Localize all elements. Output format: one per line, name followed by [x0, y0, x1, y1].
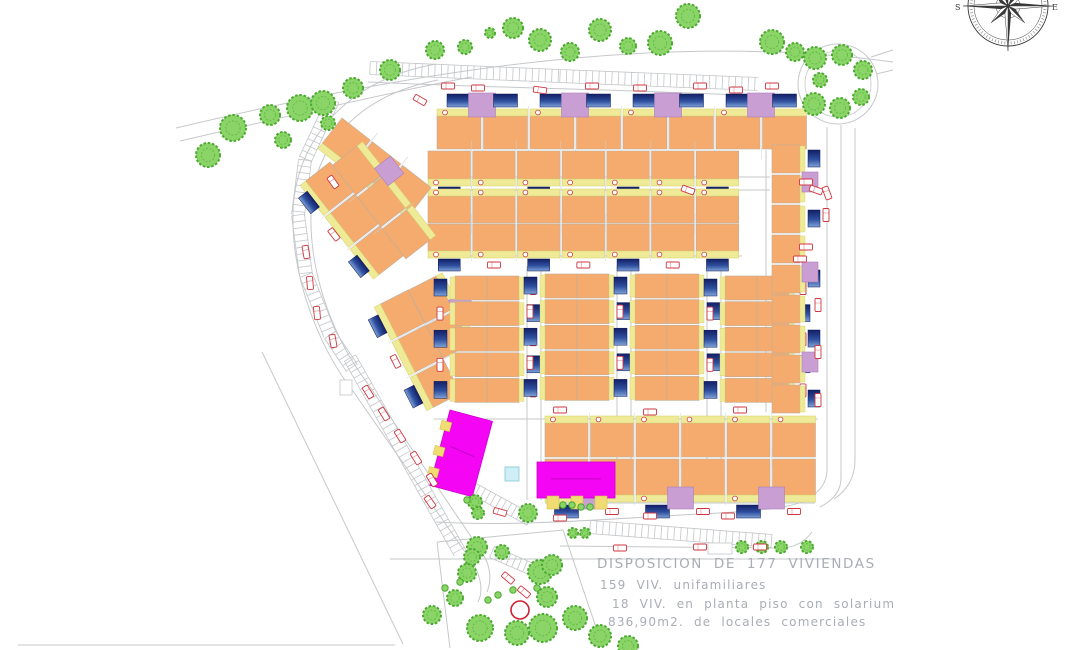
- house-unit: [428, 196, 471, 223]
- terrace-strip: [519, 354, 524, 376]
- house-unit: [545, 274, 577, 298]
- house-unit: [484, 116, 528, 149]
- house-unit: [667, 376, 699, 400]
- car-marker: [707, 358, 713, 371]
- road-line: [876, 70, 893, 74]
- annotation-line-1: DISPOSICION DE 177 VIVIENDAS: [597, 556, 876, 572]
- porch-marker: [612, 252, 617, 257]
- car-marker: [734, 407, 747, 413]
- house-unit: [682, 423, 725, 457]
- terrace-strip: [609, 377, 614, 399]
- car-marker: [554, 407, 567, 413]
- tree: [830, 98, 850, 118]
- house-unit: [696, 196, 739, 223]
- annotation-line-3: 18 VIV. en planta piso con solarium: [612, 597, 895, 611]
- car-marker: [472, 85, 485, 91]
- terrace-strip: [720, 277, 725, 299]
- car-marker: [410, 451, 422, 465]
- tree: [853, 89, 869, 105]
- house-unit: [577, 325, 609, 349]
- car-marker: [800, 179, 813, 185]
- pool: [614, 328, 627, 345]
- house-unit: [577, 351, 609, 375]
- house-unit: [772, 265, 800, 293]
- tree: [804, 47, 826, 69]
- pool: [524, 277, 537, 294]
- road-line: [871, 50, 893, 57]
- house-unit: [577, 376, 609, 400]
- pool: [737, 505, 761, 518]
- tree: [260, 105, 280, 125]
- tree: [589, 19, 611, 41]
- red-circle-annotation: [511, 601, 529, 619]
- porch-marker: [702, 252, 707, 257]
- house-unit: [530, 116, 574, 149]
- terrace-strip: [609, 326, 614, 348]
- car-marker: [722, 513, 735, 519]
- terrace-strip: [800, 386, 805, 412]
- car-marker: [517, 586, 531, 599]
- pool: [524, 379, 537, 396]
- terrace-strip: [450, 354, 455, 376]
- pool: [808, 210, 820, 227]
- porch-marker: [478, 252, 483, 257]
- porch-marker: [733, 417, 738, 422]
- tree: [568, 528, 578, 538]
- porch-marker: [702, 180, 707, 185]
- pool: [438, 259, 460, 271]
- house-unit: [545, 376, 577, 400]
- upper-floor-block: [802, 262, 818, 282]
- house-unit: [635, 325, 667, 349]
- tree: [458, 40, 472, 54]
- house-unit: [562, 151, 605, 179]
- pool: [706, 259, 728, 271]
- porch-marker: [523, 180, 528, 185]
- terrace-strip: [450, 303, 455, 325]
- terrace-strip: [630, 275, 635, 297]
- car-marker: [730, 87, 743, 93]
- car-marker: [614, 545, 627, 551]
- house-unit: [725, 302, 757, 326]
- terrace-strip: [609, 301, 614, 323]
- house-unit: [773, 423, 816, 457]
- compass-rose: [963, 0, 1053, 51]
- house-unit: [670, 116, 714, 149]
- terrace-strip: [699, 275, 704, 297]
- porch-marker: [612, 190, 617, 195]
- tree: [786, 43, 804, 61]
- porch-marker: [568, 190, 573, 195]
- porch-marker: [523, 252, 528, 257]
- annotation-line-2: 159 VIV. unifamiliares: [600, 578, 767, 592]
- porch-marker: [596, 417, 601, 422]
- tree: [196, 143, 220, 167]
- tree: [736, 541, 748, 553]
- car-marker: [527, 356, 533, 369]
- tree: [220, 115, 246, 141]
- house-unit: [607, 196, 650, 223]
- utility-box: [708, 543, 732, 554]
- house-unit: [772, 325, 800, 353]
- upper-floor-block: [748, 93, 775, 117]
- house-unit: [667, 300, 699, 324]
- site-plan-canvas: DISPOSICION DE 177 VIVIENDAS 159 VIV. un…: [0, 0, 1070, 650]
- car-marker: [815, 346, 821, 359]
- porch-marker: [612, 180, 617, 185]
- tree: [426, 41, 444, 59]
- terrace-strip: [720, 379, 725, 401]
- car-marker: [487, 262, 500, 268]
- upper-floor-block: [759, 487, 785, 509]
- tree: [380, 60, 400, 80]
- house-unit: [455, 302, 487, 326]
- tree: [561, 43, 579, 61]
- terrace-strip: [699, 377, 704, 399]
- tree: [803, 93, 825, 115]
- house-unit: [473, 224, 516, 251]
- car-marker: [527, 305, 533, 318]
- car-marker: [666, 262, 679, 268]
- terrace-strip: [699, 352, 704, 374]
- upper-floor-block: [562, 93, 589, 117]
- pool: [434, 330, 447, 347]
- car-marker: [586, 83, 599, 89]
- pool-tech-box: [505, 467, 519, 481]
- tree: [813, 73, 827, 87]
- tree: [311, 91, 335, 115]
- car-marker: [554, 515, 567, 521]
- house-unit: [577, 274, 609, 298]
- pool: [524, 328, 537, 345]
- road-line: [834, 128, 855, 499]
- bush: [457, 579, 463, 585]
- pool: [614, 379, 627, 396]
- tree: [618, 636, 638, 650]
- house-unit: [473, 196, 516, 223]
- porch-marker: [657, 252, 662, 257]
- house-unit: [635, 351, 667, 375]
- tree: [464, 549, 480, 565]
- pool: [808, 150, 820, 167]
- compass-label-e: E: [1052, 3, 1058, 12]
- tree: [676, 4, 700, 28]
- house-unit: [772, 385, 800, 413]
- car-marker: [493, 507, 507, 516]
- house-unit: [772, 175, 800, 203]
- house-unit: [763, 116, 807, 149]
- pool: [704, 330, 717, 347]
- house-unit: [607, 224, 650, 251]
- bush: [569, 502, 575, 508]
- tree: [801, 541, 813, 553]
- pool: [680, 94, 704, 107]
- entrance-stub: [595, 496, 607, 509]
- house-unit: [455, 378, 487, 402]
- terrace-strip: [630, 352, 635, 374]
- car-marker: [442, 83, 455, 89]
- pool: [434, 279, 447, 296]
- car-marker: [822, 186, 832, 200]
- house-unit: [772, 295, 800, 323]
- car-marker: [754, 544, 767, 550]
- house-unit: [725, 353, 757, 377]
- porch-marker: [722, 110, 727, 115]
- pool: [773, 94, 797, 107]
- house-unit: [772, 205, 800, 233]
- terrace-strip: [800, 146, 805, 172]
- terrace-strip: [540, 352, 545, 374]
- house-unit: [437, 116, 481, 149]
- house-unit: [652, 151, 695, 179]
- pool: [726, 94, 750, 107]
- tree: [775, 541, 787, 553]
- car-marker: [694, 544, 707, 550]
- tree: [620, 38, 636, 54]
- car-marker: [606, 509, 619, 515]
- house-unit: [772, 355, 800, 383]
- terrace-strip: [609, 275, 614, 297]
- porch-marker: [443, 110, 448, 115]
- car-marker: [313, 306, 320, 319]
- terrace-strip: [540, 301, 545, 323]
- compass-point: [1005, 6, 1008, 51]
- house-unit: [428, 224, 471, 251]
- car-marker: [617, 305, 623, 318]
- tree: [343, 78, 363, 98]
- porch-marker: [478, 180, 483, 185]
- house-unit: [455, 276, 487, 300]
- porch-marker: [657, 190, 662, 195]
- car-marker: [501, 572, 515, 585]
- house-unit: [772, 145, 800, 173]
- tree: [321, 116, 335, 130]
- house-row: [437, 93, 807, 159]
- house-unit: [487, 327, 519, 351]
- tree: [832, 45, 852, 65]
- houses-layer: [293, 93, 820, 518]
- pool: [704, 279, 717, 296]
- house-unit: [545, 423, 588, 457]
- house-unit: [517, 224, 560, 251]
- terrace-strip: [519, 303, 524, 325]
- pool: [617, 259, 639, 271]
- house-unit: [545, 300, 577, 324]
- terrace-strip: [519, 379, 524, 401]
- car-marker: [362, 385, 374, 399]
- car-marker: [766, 83, 779, 89]
- bush: [485, 597, 491, 603]
- terrace-strip: [800, 326, 805, 352]
- car-marker: [788, 509, 801, 515]
- house-unit: [562, 224, 605, 251]
- upper-floor-block: [668, 487, 694, 509]
- house-unit: [696, 151, 739, 179]
- porch-marker: [687, 417, 692, 422]
- bush: [534, 585, 540, 591]
- house-unit: [562, 196, 605, 223]
- porch-marker: [702, 190, 707, 195]
- house-unit: [591, 423, 634, 457]
- terrace-strip: [699, 326, 704, 348]
- house-unit: [667, 325, 699, 349]
- pool: [434, 381, 447, 398]
- house-unit: [517, 196, 560, 223]
- car-marker: [800, 244, 813, 250]
- pool: [614, 277, 627, 294]
- house-unit: [652, 224, 695, 251]
- terrace-strip: [800, 296, 805, 322]
- bush: [587, 504, 593, 510]
- terrace-strip: [450, 379, 455, 401]
- house-unit: [725, 327, 757, 351]
- porch-marker: [629, 110, 634, 115]
- porch-marker: [657, 180, 662, 185]
- house-unit: [667, 274, 699, 298]
- pool: [587, 94, 611, 107]
- house-unit: [696, 224, 739, 251]
- house-unit: [635, 376, 667, 400]
- car-marker: [413, 94, 427, 106]
- porch-marker: [568, 252, 573, 257]
- terrace-strip: [519, 277, 524, 299]
- entrance-stub: [547, 496, 559, 509]
- house-unit: [667, 351, 699, 375]
- compass-point: [1008, 6, 1011, 51]
- porch-marker: [536, 110, 541, 115]
- compass-label-s: S: [955, 3, 960, 12]
- porch-marker: [523, 190, 528, 195]
- car-marker: [394, 429, 406, 443]
- car-marker: [815, 394, 821, 407]
- car-marker: [437, 358, 443, 371]
- car-marker: [533, 86, 547, 94]
- porch-marker: [642, 496, 647, 501]
- house-unit: [455, 353, 487, 377]
- car-marker: [644, 409, 657, 415]
- pool: [494, 94, 518, 107]
- car-marker: [794, 256, 807, 262]
- bush: [442, 585, 448, 591]
- terrace-strip: [800, 206, 805, 232]
- terrace-strip: [720, 354, 725, 376]
- tree: [580, 528, 590, 538]
- house-unit: [545, 351, 577, 375]
- porch-marker: [551, 417, 556, 422]
- house-unit: [725, 378, 757, 402]
- bush: [510, 587, 516, 593]
- tree: [648, 31, 672, 55]
- pool: [528, 259, 550, 271]
- car-marker: [577, 262, 590, 268]
- tree: [854, 61, 872, 79]
- tree: [472, 507, 484, 519]
- terrace-strip: [540, 326, 545, 348]
- terrace-strip: [540, 377, 545, 399]
- terrace-strip: [630, 377, 635, 399]
- tree: [275, 132, 291, 148]
- house-unit: [636, 423, 679, 457]
- house-unit: [577, 300, 609, 324]
- car-marker: [823, 209, 829, 222]
- tree: [542, 555, 562, 575]
- pool: [704, 381, 717, 398]
- upper-floor-block: [655, 93, 682, 117]
- bush: [464, 497, 470, 503]
- house-unit: [623, 116, 667, 149]
- porch-marker: [434, 180, 439, 185]
- house-unit: [487, 353, 519, 377]
- house-unit: [716, 116, 760, 149]
- pool: [633, 94, 657, 107]
- terrace-strip: [450, 277, 455, 299]
- terrace-strip: [519, 328, 524, 350]
- tree: [529, 614, 557, 642]
- tree: [287, 95, 313, 121]
- commercial-building: [537, 462, 615, 509]
- car-marker: [694, 83, 707, 89]
- pool: [540, 94, 564, 107]
- upper-floor-block: [469, 93, 496, 117]
- road-line: [262, 352, 403, 644]
- car-marker: [644, 513, 657, 519]
- terrace-strip: [450, 328, 455, 350]
- annotation-line-4: 836,90m2. de locales comerciales: [608, 615, 867, 629]
- porch-marker: [733, 496, 738, 501]
- car-marker: [634, 85, 647, 91]
- tree: [495, 545, 509, 559]
- bush: [560, 502, 566, 508]
- tree: [467, 615, 493, 641]
- porch-marker: [478, 190, 483, 195]
- house-unit: [473, 151, 516, 179]
- house-unit: [545, 325, 577, 349]
- terrace-strip: [630, 326, 635, 348]
- terrace-strip: [540, 275, 545, 297]
- car-marker: [809, 185, 823, 195]
- tree: [519, 504, 537, 522]
- house-unit: [455, 327, 487, 351]
- car-marker: [437, 307, 443, 320]
- bush: [578, 504, 584, 510]
- pool: [808, 330, 820, 347]
- house-unit: [725, 276, 757, 300]
- house-unit: [727, 423, 770, 457]
- house-unit: [487, 276, 519, 300]
- house-unit: [635, 300, 667, 324]
- house-unit: [517, 151, 560, 179]
- car-marker: [707, 307, 713, 320]
- porch-marker: [778, 417, 783, 422]
- porch-marker: [434, 252, 439, 257]
- tree: [529, 29, 551, 51]
- car-marker: [329, 334, 337, 348]
- pool: [447, 94, 471, 107]
- tree: [423, 606, 441, 624]
- terrace-strip: [630, 301, 635, 323]
- road-line: [820, 125, 841, 507]
- car-marker: [697, 509, 710, 515]
- tree: [447, 590, 463, 606]
- house-unit: [652, 196, 695, 223]
- terrace-strip: [720, 328, 725, 350]
- terrace-strip: [720, 303, 725, 325]
- house-unit: [487, 302, 519, 326]
- house-unit: [635, 274, 667, 298]
- car-marker: [815, 299, 821, 312]
- utility-box: [340, 380, 352, 395]
- terrace-strip: [609, 352, 614, 374]
